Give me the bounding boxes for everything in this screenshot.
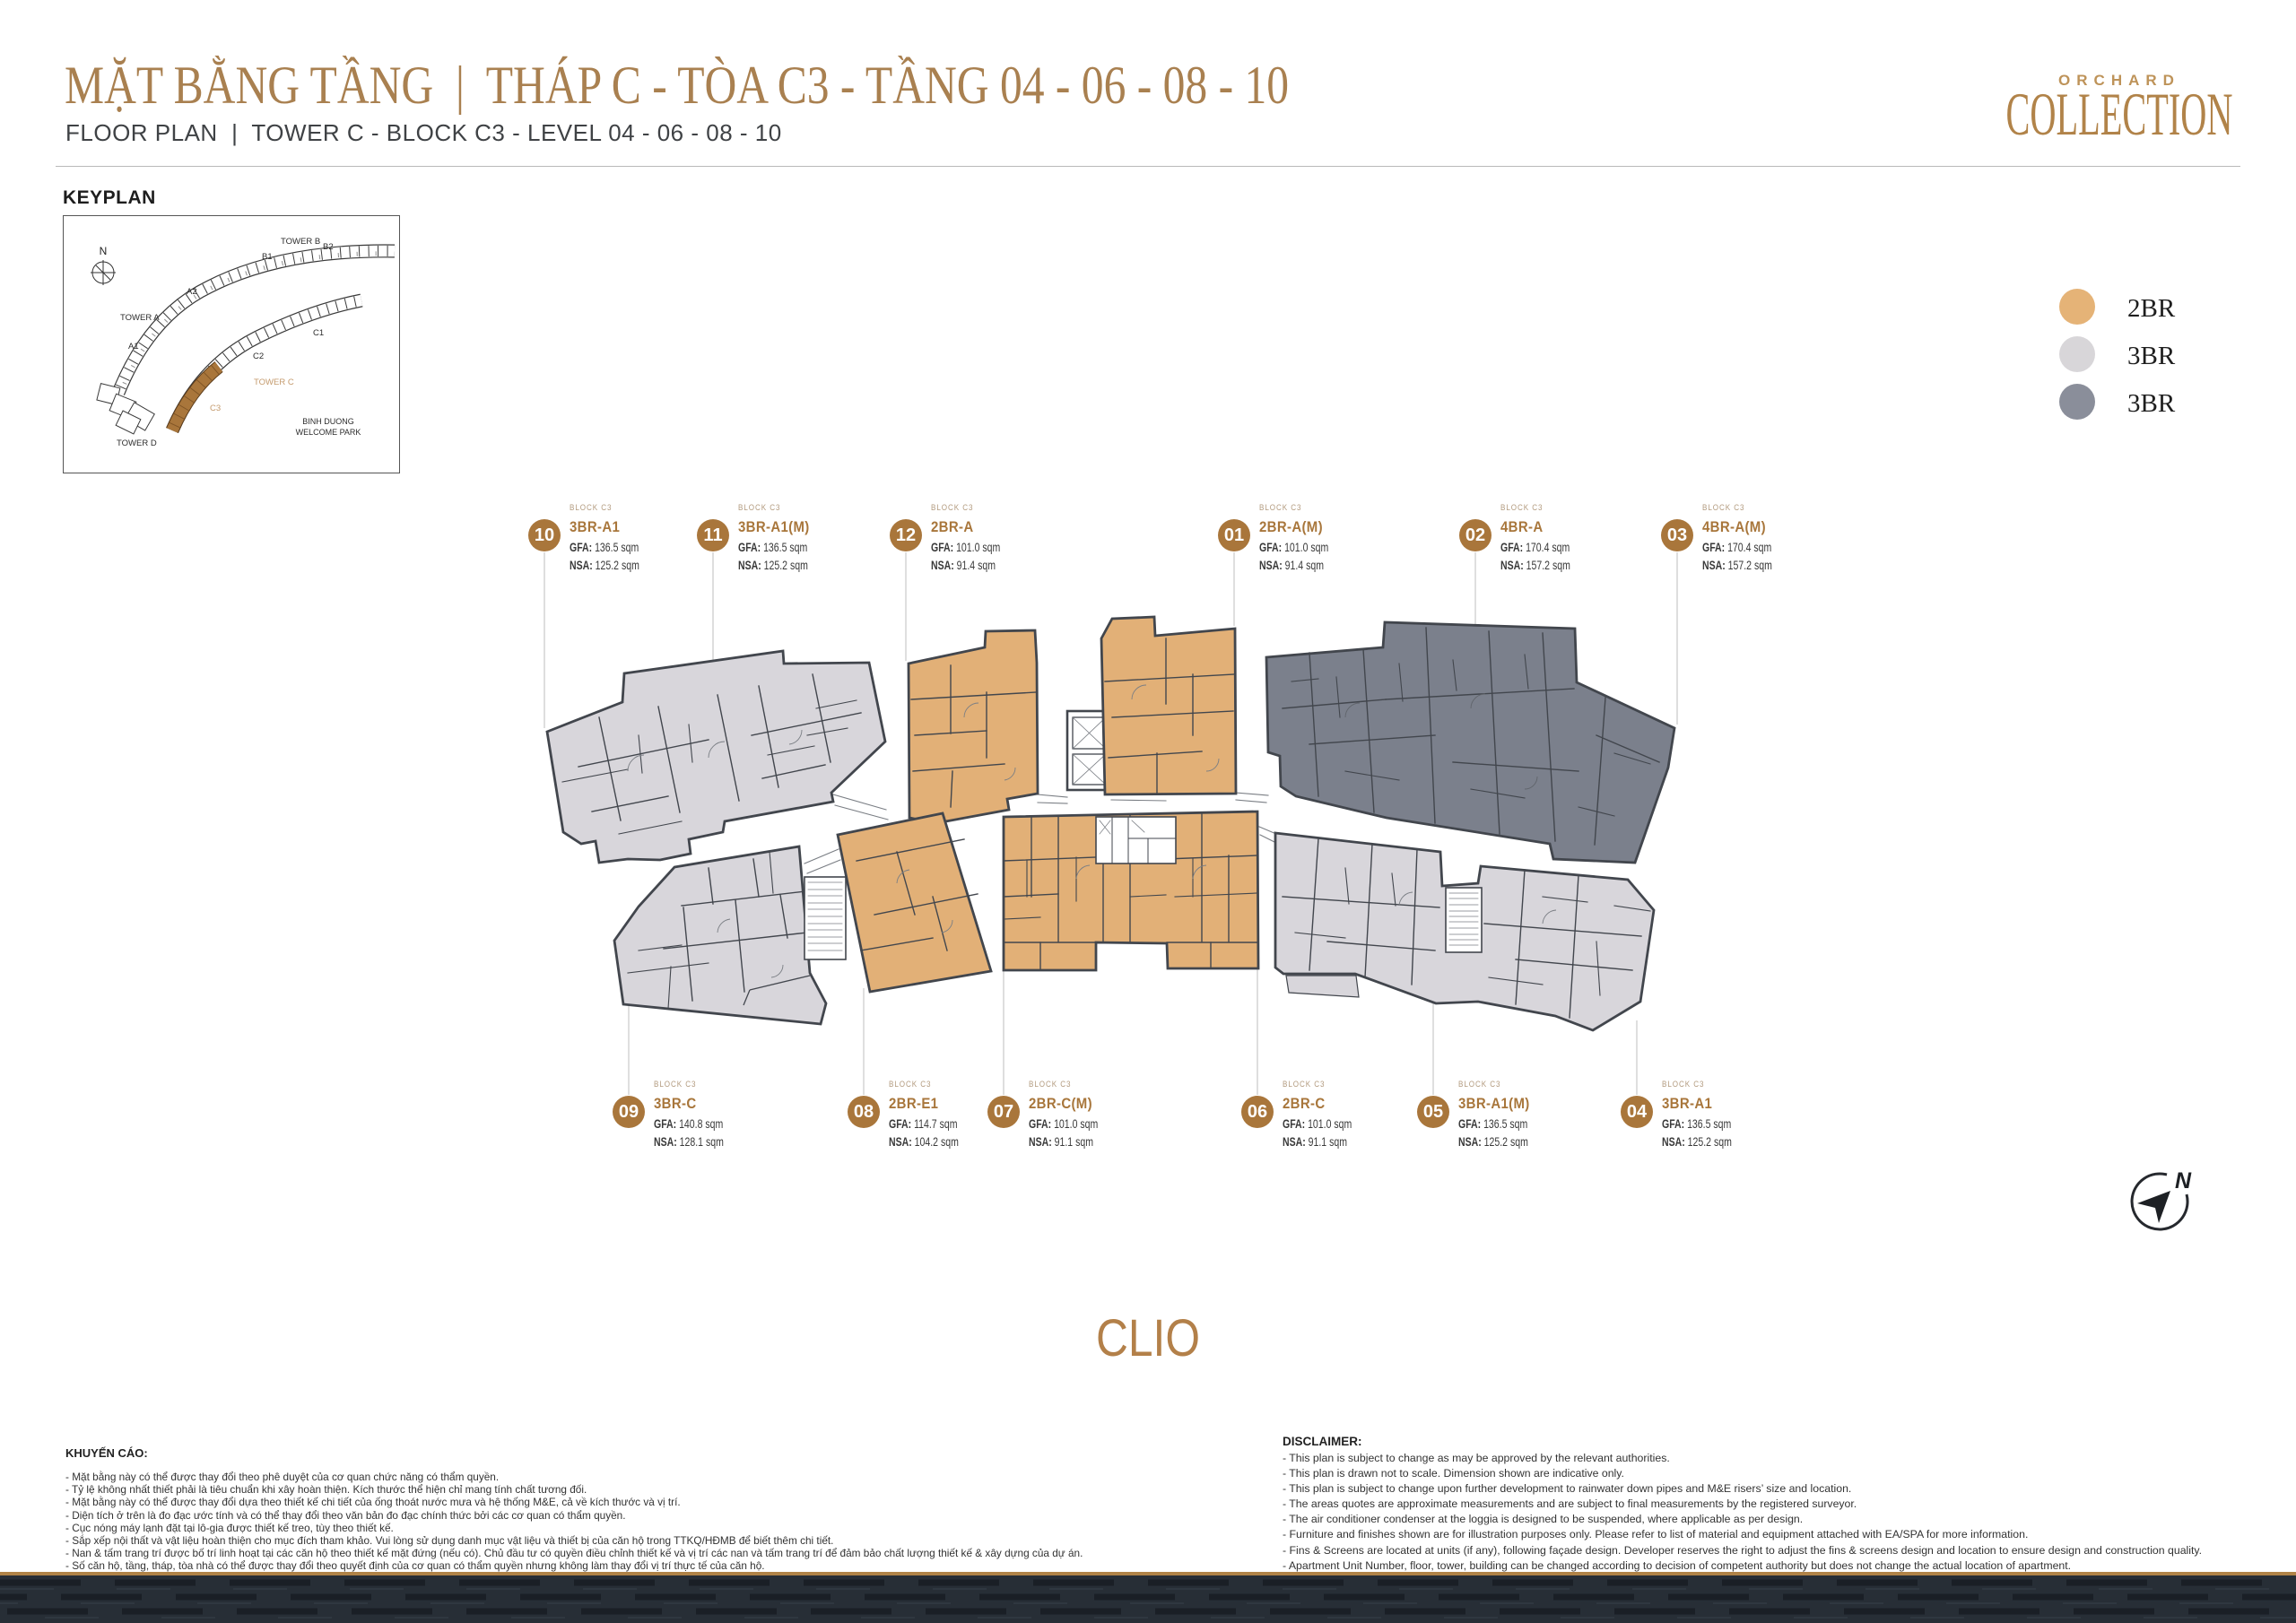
svg-text:N: N: [2175, 1168, 2192, 1193]
svg-text:CLIO: CLIO: [1096, 1309, 1200, 1367]
